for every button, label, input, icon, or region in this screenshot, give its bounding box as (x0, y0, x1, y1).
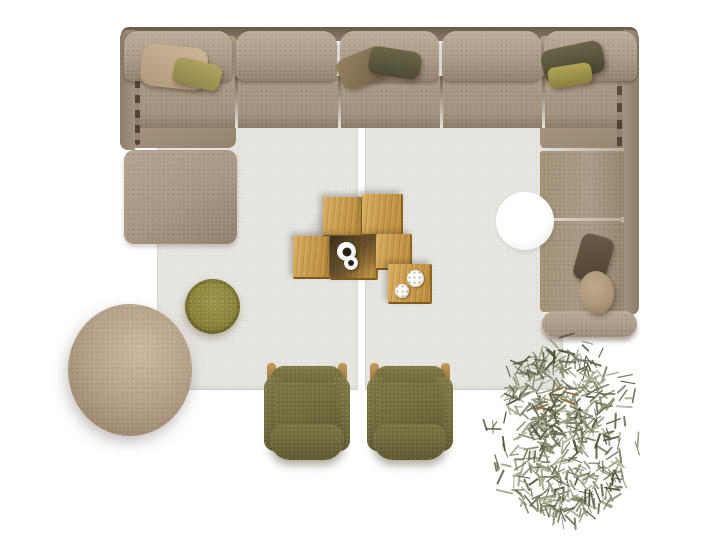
sofa-right-seat (540, 150, 624, 218)
armchair-right (367, 362, 453, 462)
chair-front-cushion (373, 424, 447, 460)
armchair-left (264, 362, 350, 462)
coffee-table-cluster (280, 180, 450, 310)
seat-gap (540, 148, 624, 151)
cube-table (293, 236, 331, 279)
small-pouf (185, 279, 240, 334)
flower-dish (407, 270, 424, 287)
seat-gap (235, 76, 238, 128)
seat-gap (440, 76, 443, 128)
flower-dish (395, 284, 409, 298)
back-cushion (236, 31, 337, 81)
scene-canvas (0, 0, 722, 542)
espresso-cup (344, 256, 358, 270)
cube-table (362, 194, 403, 236)
seat-gap (542, 76, 545, 128)
chair-front-cushion (270, 424, 344, 460)
round-side-table (496, 192, 554, 250)
seat-gap (338, 76, 341, 128)
chaise-module (124, 150, 237, 244)
potted-plant (458, 320, 663, 538)
cube-table (323, 197, 363, 237)
cup-interior (348, 260, 354, 266)
back-cushion (442, 31, 541, 81)
cup-interior (342, 247, 351, 256)
large-pouf (68, 304, 192, 436)
